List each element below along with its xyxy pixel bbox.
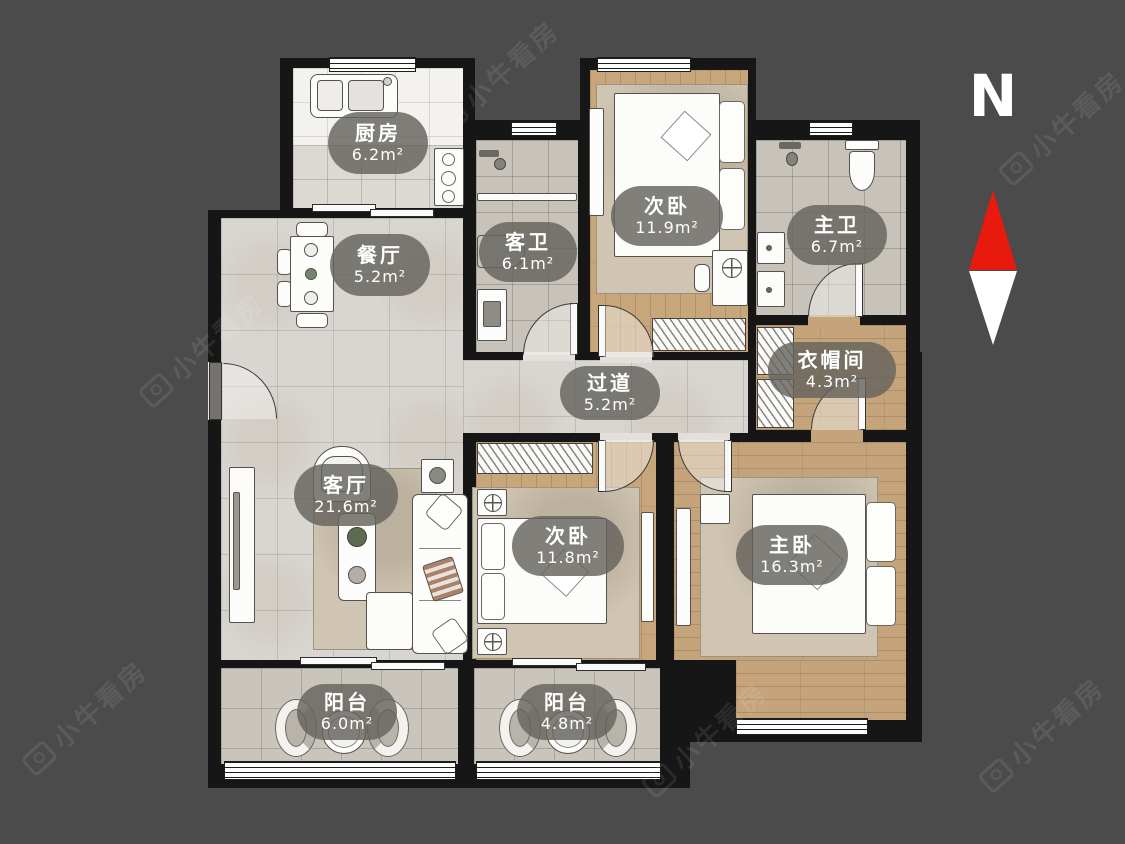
bedroom-north-wardrobe-cabinet <box>589 108 604 216</box>
kitchen-window <box>330 58 415 71</box>
bedroom-north-pillow <box>719 168 745 230</box>
room-name: 次卧 <box>644 194 690 218</box>
room-label-balcony-east: 阳台 4.8m² <box>517 684 617 740</box>
room-name: 厨房 <box>355 121 401 145</box>
room-label-master-bath: 主卫 6.7m² <box>787 205 887 265</box>
dining-plate-icon <box>304 243 318 257</box>
shower-head-icon <box>494 158 506 170</box>
room-name: 阳台 <box>544 690 590 714</box>
shower-fixture-icon <box>479 150 499 157</box>
room-name: 阳台 <box>324 690 370 714</box>
master-pillow <box>866 502 896 562</box>
master-bedroom-window <box>737 719 867 734</box>
room-area: 4.3m² <box>806 372 858 391</box>
room-area: 6.2m² <box>352 145 404 164</box>
entry-door-leaf <box>209 362 222 420</box>
room-area: 11.8m² <box>536 548 600 567</box>
watermark-logo-icon <box>640 761 678 799</box>
room-area: 4.8m² <box>541 714 593 733</box>
room-name: 客卫 <box>505 230 551 254</box>
dining-plate-icon <box>304 291 318 305</box>
balcony-west-sliding-door <box>371 662 445 670</box>
room-area: 6.7m² <box>811 237 863 256</box>
kitchen-faucet-icon <box>383 77 392 86</box>
balcony-west-sliding-door <box>300 657 377 665</box>
room-name: 过道 <box>587 371 633 395</box>
bedroom-south-pillow <box>481 573 505 620</box>
room-area: 11.9m² <box>635 218 699 237</box>
shower-glass-divider <box>477 193 577 201</box>
dining-plant-icon <box>305 268 317 280</box>
sofa-cushion-line <box>419 600 461 601</box>
room-label-dining: 餐厅 5.2m² <box>330 234 430 296</box>
stove-burner-icon <box>441 171 456 186</box>
room-name: 次卧 <box>545 524 591 548</box>
toilet-bowl <box>849 151 875 191</box>
room-area: 6.0m² <box>321 714 373 733</box>
dining-chair <box>296 313 328 328</box>
room-label-kitchen: 厨房 6.2m² <box>328 112 428 174</box>
watermark-logo-icon <box>137 371 175 409</box>
closet-door-opening <box>811 428 863 442</box>
nightstand-dial-icon <box>484 494 502 512</box>
room-label-closet: 衣帽间 4.3m² <box>768 342 896 398</box>
coffee-table-tray-icon <box>348 566 366 584</box>
master-bedroom-cabinet <box>676 508 691 626</box>
room-area: 5.2m² <box>584 395 636 414</box>
room-area: 16.3m² <box>760 557 824 576</box>
room-name: 衣帽间 <box>798 348 867 372</box>
toilet-tank <box>845 140 879 150</box>
room-label-hallway: 过道 5.2m² <box>560 366 660 420</box>
room-label-bedroom-north: 次卧 11.9m² <box>611 186 723 246</box>
bedroom-north-pillow <box>719 101 745 163</box>
master-bath-showerhead-icon <box>786 152 798 166</box>
kitchen-sink-basin-left <box>317 80 343 111</box>
balcony-west-railing <box>225 762 455 779</box>
room-label-living: 客厅 21.6m² <box>294 464 398 526</box>
room-label-master-bedroom: 主卧 16.3m² <box>736 525 848 585</box>
room-label-bedroom-south: 次卧 11.8m² <box>512 516 624 576</box>
watermark-text: 小牛看房 <box>44 651 155 756</box>
bedroom-north-wardrobe <box>652 318 746 351</box>
kitchen-sink-basin-right <box>348 80 384 111</box>
stove-burner-icon <box>442 190 455 203</box>
room-name: 主卫 <box>814 213 860 237</box>
guest-bath-window <box>512 122 556 135</box>
vanity-faucet-dot <box>766 245 772 251</box>
master-nightstand <box>700 494 730 524</box>
desk-mirror-icon <box>722 258 742 278</box>
compass-south-arrow-icon <box>969 271 1017 345</box>
sofa-chaise <box>366 592 413 650</box>
floorplan-canvas: 厨房 6.2m² 餐厅 5.2m² 客卫 6.1m² 次卧 11.9m² 主卫 … <box>0 0 1125 844</box>
room-name: 餐厅 <box>357 243 403 267</box>
watermark-logo-icon <box>20 739 58 777</box>
room-area: 6.1m² <box>502 254 554 273</box>
tv-screen <box>233 492 240 590</box>
bedroom-south-pillow <box>481 523 505 570</box>
bedroom-south-wardrobe <box>477 443 593 474</box>
bedroom-north-stool <box>694 264 710 292</box>
room-area: 5.2m² <box>354 267 406 286</box>
master-bath-faucet-icon <box>779 142 801 149</box>
room-name: 客厅 <box>323 473 369 497</box>
vanity-faucet-dot <box>766 287 772 293</box>
sofa-cushion-line <box>419 548 461 549</box>
guest-bath-sink <box>483 301 501 327</box>
room-label-guest-bath: 客卫 6.1m² <box>479 222 577 282</box>
stove-burner-icon <box>442 153 455 166</box>
kitchen-sliding-door <box>370 209 434 217</box>
coffee-table-plant-icon <box>347 527 367 547</box>
watermark-logo-icon <box>977 756 1015 794</box>
balcony-east-sliding-door <box>576 663 646 671</box>
room-label-balcony-west: 阳台 6.0m² <box>297 684 397 740</box>
compass-north-label: N <box>945 62 1041 130</box>
bedroom-north-window <box>598 58 690 71</box>
master-pillow <box>866 566 896 626</box>
bedroom-south-cabinet <box>641 512 654 622</box>
watermark: 小牛看房 <box>15 651 154 782</box>
room-name: 主卧 <box>769 533 815 557</box>
kitchen-sliding-door <box>312 204 376 212</box>
side-table-flower-icon <box>429 467 446 484</box>
compass-north-arrow-icon <box>969 190 1017 270</box>
watermark: 小牛看房 <box>972 668 1111 799</box>
room-area: 21.6m² <box>314 497 378 516</box>
balcony-east-sliding-door <box>512 658 582 666</box>
dining-chair <box>296 222 328 237</box>
balcony-east-railing <box>477 762 660 779</box>
master-bath-window <box>810 122 852 135</box>
watermark-text: 小牛看房 <box>1001 668 1112 773</box>
nightstand-dial-icon <box>484 633 502 651</box>
